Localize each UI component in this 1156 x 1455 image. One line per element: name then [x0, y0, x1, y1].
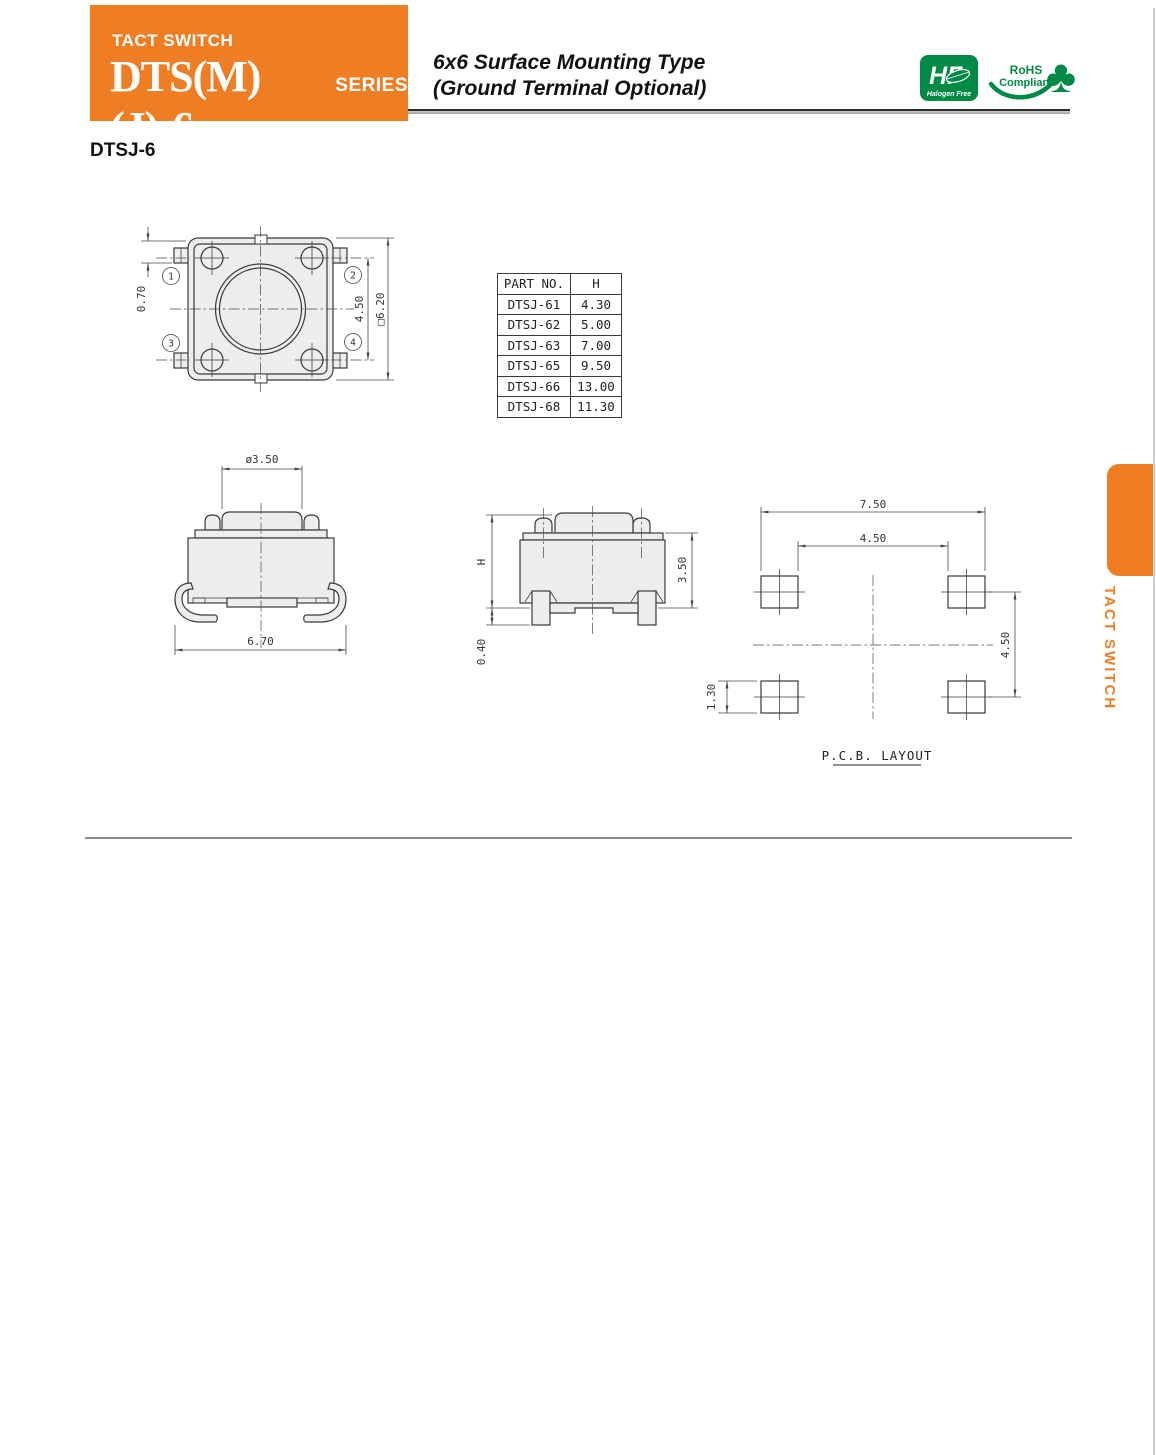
dim-terminal-offset: 0.70 — [135, 286, 148, 313]
pcb-layout-caption: P.C.B. LAYOUT — [822, 748, 933, 763]
h-cell: 5.00 — [571, 315, 622, 336]
col-header-h: H — [571, 274, 622, 295]
dim-stem-diameter: ø3.50 — [245, 453, 278, 466]
dim-pad-height: 1.30 — [705, 684, 718, 711]
dim-standoff: 0.40 — [475, 639, 488, 666]
dim-body-size: □6.20 — [374, 292, 387, 325]
datasheet-page: TACT SWITCH DTS(M)(J)-6 SERIES 6x6 Surfa… — [0, 0, 1156, 1455]
series-suffix: SERIES — [335, 75, 408, 97]
table-row: DTSJ-637.00 — [498, 335, 622, 356]
side-view-drawing: H 0.40 3.50 — [468, 492, 718, 682]
part-no-cell: DTSJ-62 — [498, 315, 571, 336]
subtitle-line2: (Ground Terminal Optional) — [433, 76, 706, 102]
table-row: DTSJ-659.50 — [498, 356, 622, 377]
terminal-3-label: 3 — [168, 339, 174, 350]
product-category: TACT SWITCH — [112, 31, 233, 51]
terminal-2-label: 2 — [350, 271, 356, 282]
section-divider — [85, 837, 1072, 839]
dim-contact-pitch: 4.50 — [353, 296, 366, 323]
clover-icon: ♣ — [1046, 50, 1076, 102]
dim-outer-span: 7.50 — [860, 498, 887, 511]
table-row: DTSJ-6811.30 — [498, 397, 622, 418]
part-no-cell: DTSJ-65 — [498, 356, 571, 377]
dim-base-width: 6.70 — [247, 635, 274, 648]
table-header-row: PART NO. H — [498, 274, 622, 295]
terminal-4-label: 4 — [350, 338, 356, 349]
hf-label: Halogen Free — [927, 91, 971, 98]
front-view-drawing: ø3.50 6.70 — [165, 443, 385, 661]
model-heading: DTSJ-6 — [90, 140, 155, 162]
subtitle-line1: 6x6 Surface Mounting Type — [433, 50, 706, 76]
h-cell: 7.00 — [571, 335, 622, 356]
table-row: DTSJ-614.30 — [498, 294, 622, 315]
series-header-banner: TACT SWITCH DTS(M)(J)-6 SERIES — [90, 5, 408, 121]
header-divider — [408, 109, 1070, 114]
halogen-free-badge: HF Halogen Free — [920, 55, 978, 101]
h-cell: 9.50 — [571, 356, 622, 377]
side-index-tab — [1107, 464, 1153, 576]
rohs-line1: RoHS — [1010, 63, 1043, 77]
table-row: DTSJ-6613.00 — [498, 376, 622, 397]
dim-row-pitch: 4.50 — [999, 632, 1012, 659]
h-cell: 13.00 — [571, 376, 622, 397]
col-header-part-no: PART NO. — [498, 274, 571, 295]
dim-inner-span: 4.50 — [860, 532, 887, 545]
part-no-cell: DTSJ-61 — [498, 294, 571, 315]
rohs-badge: RoHS Compliant ♣ — [986, 50, 1078, 108]
halogen-free-icon: HF Halogen Free — [920, 55, 978, 101]
part-no-cell: DTSJ-68 — [498, 397, 571, 418]
h-cell: 11.30 — [571, 397, 622, 418]
table-row: DTSJ-625.00 — [498, 315, 622, 336]
series-name-row: DTS(M)(J)-6 SERIES — [110, 51, 408, 153]
pcb-layout-drawing: 7.50 4.50 4.50 1.30 P.C.B. LAYOUT — [705, 495, 1040, 775]
terminal-1-label: 1 — [168, 272, 174, 283]
part-number-table: PART NO. H DTSJ-614.30 DTSJ-625.00 DTSJ-… — [497, 273, 622, 418]
top-view-drawing: 1 2 3 4 0.70 4.50 □6.20 — [128, 224, 400, 406]
dim-body-height: 3.50 — [676, 557, 689, 584]
series-name: DTS(M)(J)-6 — [110, 51, 326, 153]
rohs-icon: RoHS Compliant ♣ — [986, 50, 1078, 108]
side-tab-label: TACT SWITCH — [1101, 586, 1118, 710]
part-no-cell: DTSJ-63 — [498, 335, 571, 356]
h-cell: 4.30 — [571, 294, 622, 315]
part-no-cell: DTSJ-66 — [498, 376, 571, 397]
dim-total-height: H — [475, 559, 488, 566]
page-edge-line — [1153, 8, 1155, 1455]
page-subtitle: 6x6 Surface Mounting Type (Ground Termin… — [433, 50, 706, 102]
